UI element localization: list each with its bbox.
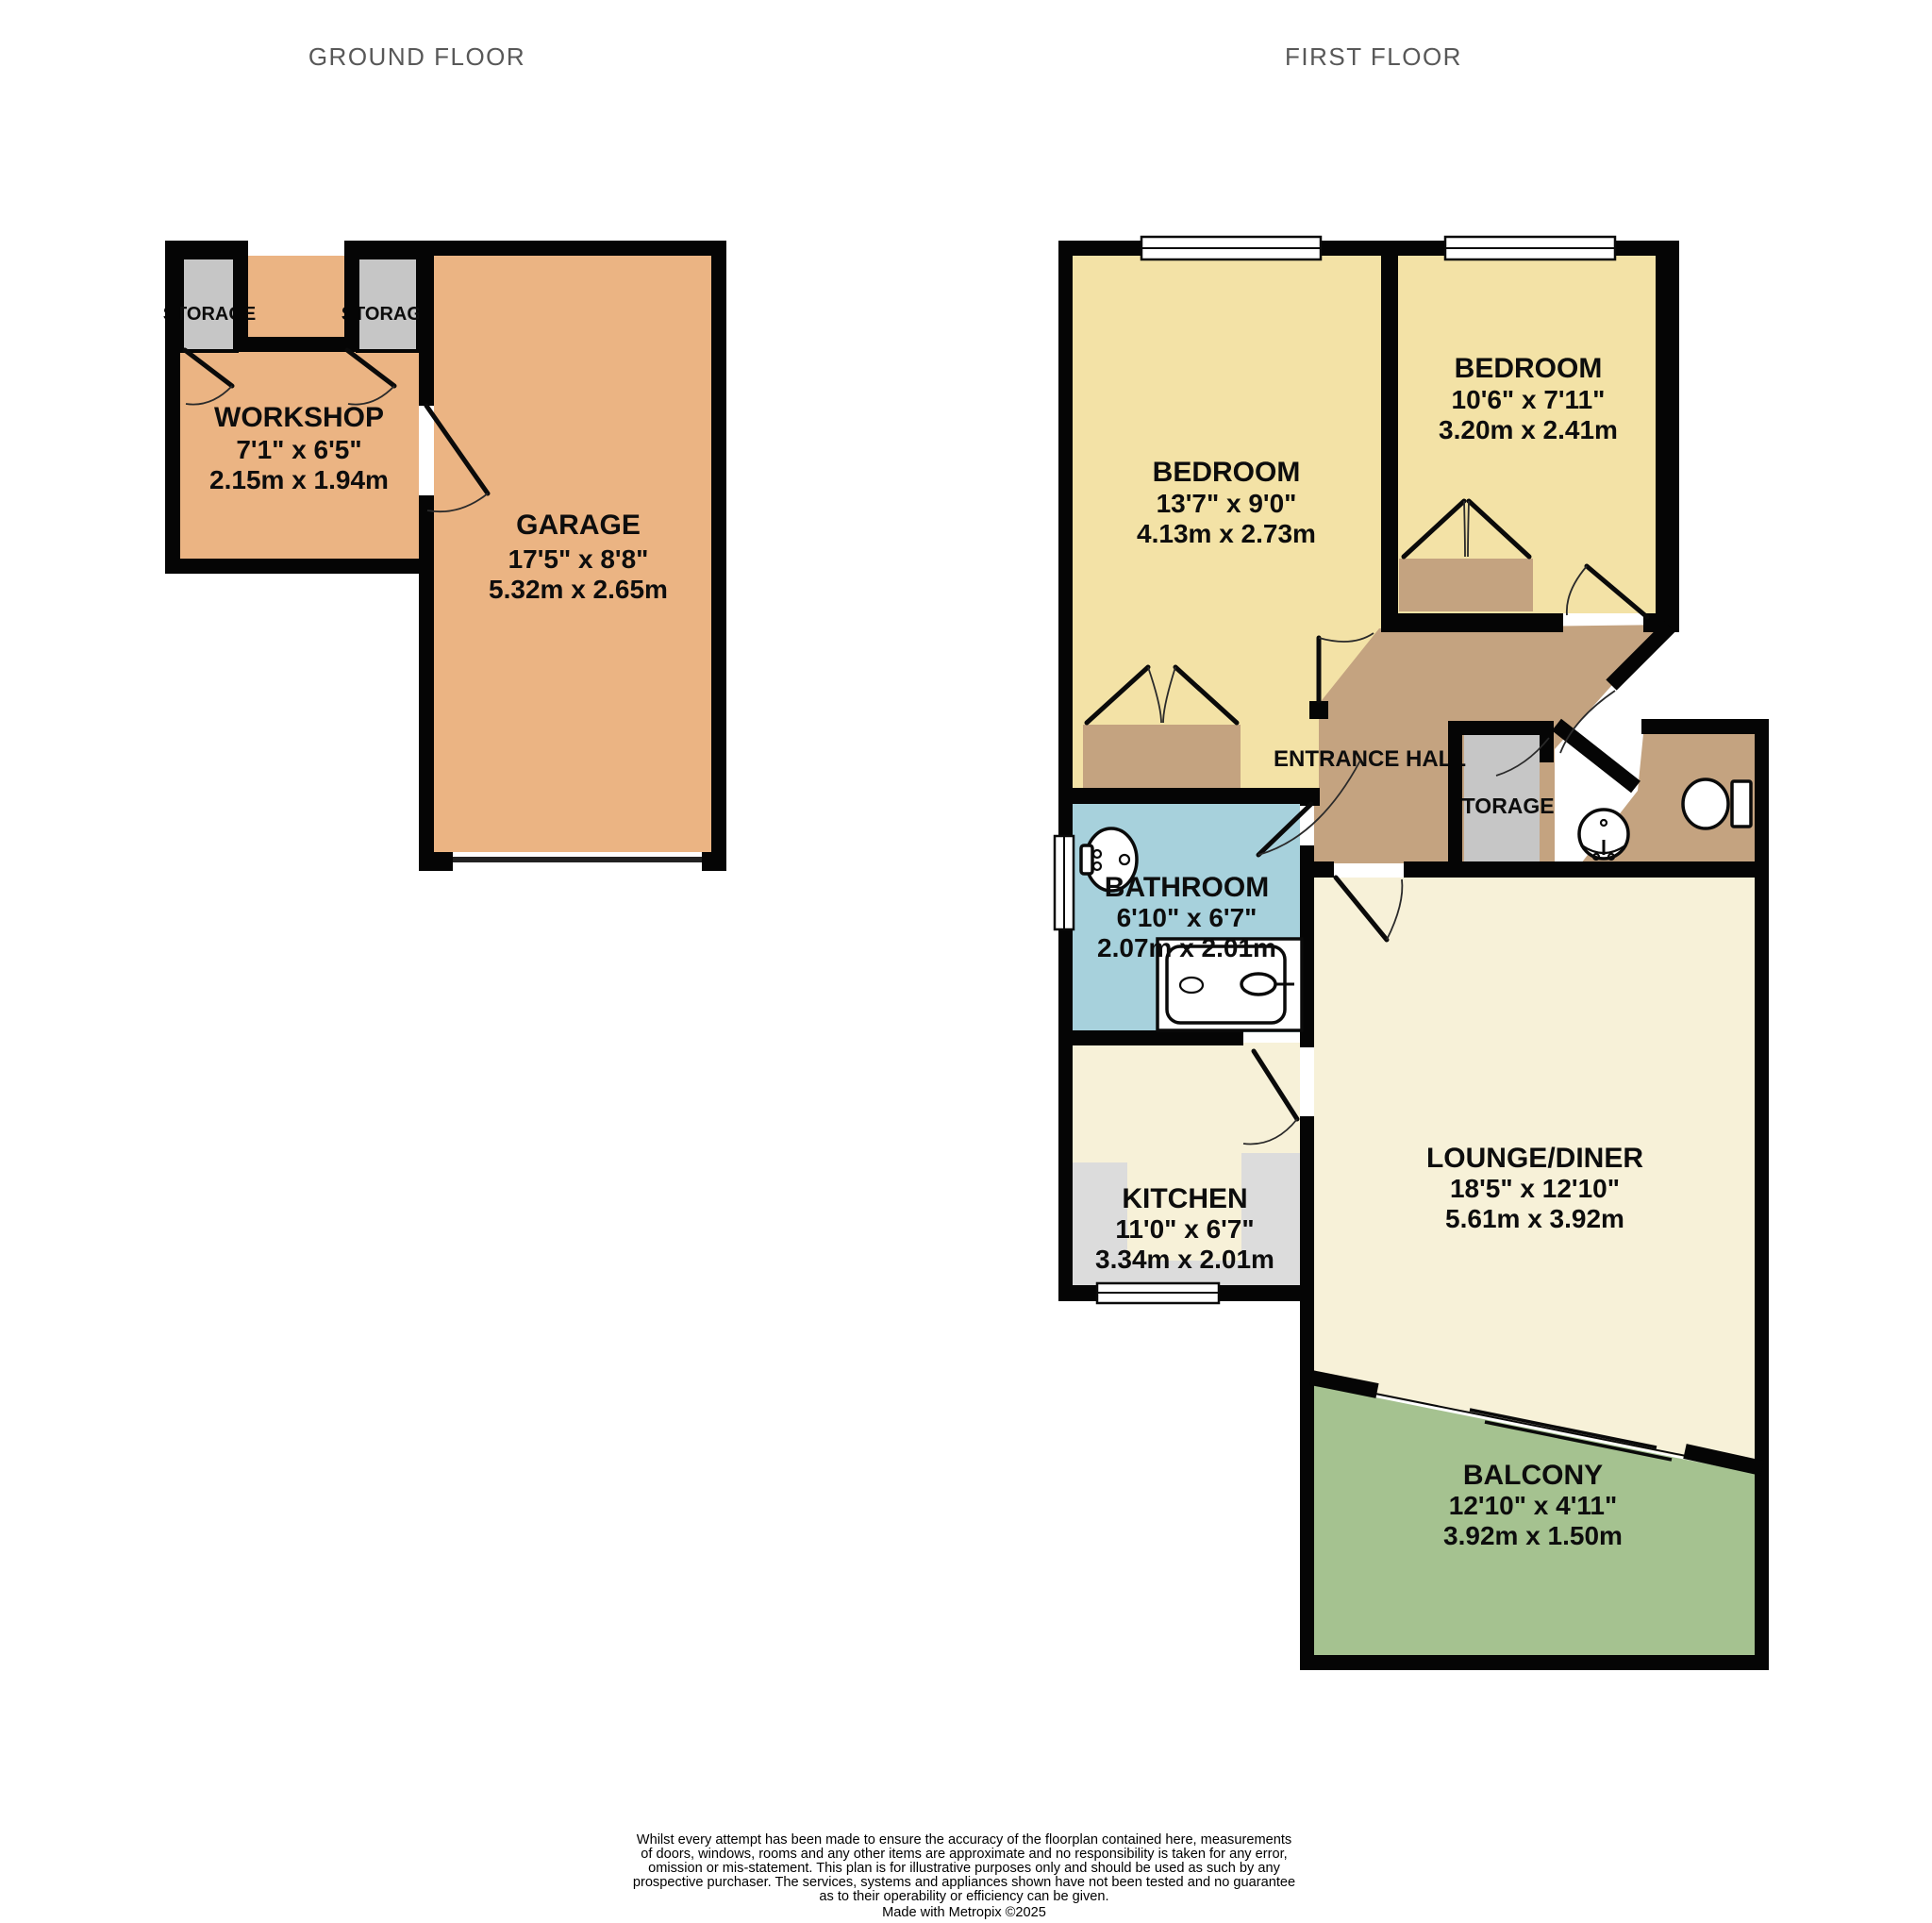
wall	[1058, 241, 1073, 838]
wall	[1381, 613, 1563, 632]
kitchen-imperial: 11'0" x 6'7"	[1115, 1214, 1254, 1244]
wall	[1641, 719, 1769, 734]
disclaimer-credit: Made with Metropix ©2025	[882, 1905, 1046, 1920]
balcony-metric: 3.92m x 1.50m	[1443, 1521, 1623, 1550]
wall-door-post	[1309, 701, 1328, 719]
wall	[1314, 861, 1334, 878]
wall	[1755, 719, 1769, 1670]
wall-notch-right	[344, 241, 359, 352]
disclaimer: Whilst every attempt has been made to en…	[633, 1832, 1295, 1920]
wall	[1300, 1030, 1314, 1047]
wall-diagonal	[1557, 725, 1636, 787]
wall	[1448, 721, 1462, 878]
first-floor-plan: ENTRANCE HALL STORAGE	[1055, 237, 1769, 1670]
wall	[1300, 1299, 1314, 1670]
door-arc	[1464, 501, 1465, 557]
wall-notch-left	[233, 241, 248, 352]
door-arc	[1468, 501, 1469, 557]
workshop-label: WORKSHOP	[214, 402, 384, 433]
wardrobe-bedroom-right	[1399, 559, 1533, 611]
wall	[165, 241, 180, 574]
garage-label: GARAGE	[516, 510, 641, 541]
disclaimer-line: as to their operability or efficiency ca…	[819, 1889, 1108, 1904]
first-floor-title: FIRST FLOOR	[1285, 42, 1462, 71]
wc-sink-icon	[1579, 810, 1628, 860]
wall	[1300, 1655, 1769, 1670]
kitchen-label: KITCHEN	[1122, 1183, 1247, 1214]
workshop-metric: 2.15m x 1.94m	[209, 465, 389, 494]
wall	[419, 256, 434, 406]
bedroom-left-label: BEDROOM	[1153, 457, 1301, 488]
bathroom-metric: 2.07m x 2.01m	[1097, 933, 1276, 962]
toilet-icon	[1683, 779, 1751, 828]
wall	[711, 241, 726, 871]
bedroom-right-imperial: 10'6" x 7'11"	[1452, 385, 1606, 414]
ground-floor-title: GROUND FLOOR	[308, 42, 525, 71]
wall	[1058, 788, 1313, 804]
disclaimer-line: prospective purchaser. The services, sys…	[633, 1875, 1295, 1890]
bedroom-right-label: BEDROOM	[1455, 353, 1603, 384]
bedroom-right-metric: 3.20m x 2.41m	[1439, 415, 1618, 444]
floorplan-canvas: STORAGE STORAGE WORKSHOP 7'1" x 6'5" 2.1…	[0, 0, 1932, 1923]
wardrobe-bedroom-left	[1083, 725, 1241, 790]
wall	[419, 852, 453, 871]
entrance-hall-label: ENTRANCE HALL	[1274, 746, 1466, 772]
storage-label: STORAGE	[1447, 794, 1554, 818]
garage-door	[453, 857, 702, 862]
floorplan-svg: STORAGE STORAGE WORKSHOP 7'1" x 6'5" 2.1…	[0, 0, 1932, 1923]
balcony-imperial: 12'10" x 4'11"	[1449, 1491, 1617, 1520]
wall	[1656, 241, 1679, 632]
wall	[1381, 256, 1398, 632]
balcony-label: BALCONY	[1463, 1460, 1603, 1491]
wall	[419, 559, 434, 871]
kitchen-metric: 3.34m x 2.01m	[1095, 1245, 1274, 1274]
wall-notch-bottom	[233, 337, 359, 352]
garage-imperial: 17'5" x 8'8"	[508, 544, 649, 574]
garage-metric: 5.32m x 2.65m	[489, 575, 668, 604]
lounge-diner-metric: 5.61m x 3.92m	[1445, 1204, 1624, 1233]
disclaimer-line: of doors, windows, rooms and any other i…	[641, 1847, 1287, 1862]
disclaimer-line: Whilst every attempt has been made to en…	[637, 1832, 1291, 1848]
wall	[1448, 721, 1554, 735]
ground-floor-plan: STORAGE STORAGE WORKSHOP 7'1" x 6'5" 2.1…	[163, 241, 726, 871]
wall	[1300, 1116, 1314, 1301]
bathroom-imperial: 6'10" x 6'7"	[1117, 903, 1257, 932]
lounge-diner-imperial: 18'5" x 12'10"	[1450, 1174, 1620, 1203]
wall	[702, 852, 726, 871]
lounge-diner-label: LOUNGE/DINER	[1426, 1143, 1643, 1174]
wall	[1058, 1030, 1243, 1045]
wall	[359, 241, 726, 256]
disclaimer-line: omission or mis-statement. This plan is …	[648, 1861, 1280, 1876]
workshop-imperial: 7'1" x 6'5"	[236, 435, 361, 464]
wall	[1058, 928, 1073, 1299]
bedroom-left-metric: 4.13m x 2.73m	[1137, 519, 1316, 548]
bathroom-label: BATHROOM	[1105, 872, 1269, 903]
wall	[419, 495, 434, 559]
bedroom-left-imperial: 13'7" x 9'0"	[1157, 489, 1297, 518]
wall	[165, 559, 434, 574]
